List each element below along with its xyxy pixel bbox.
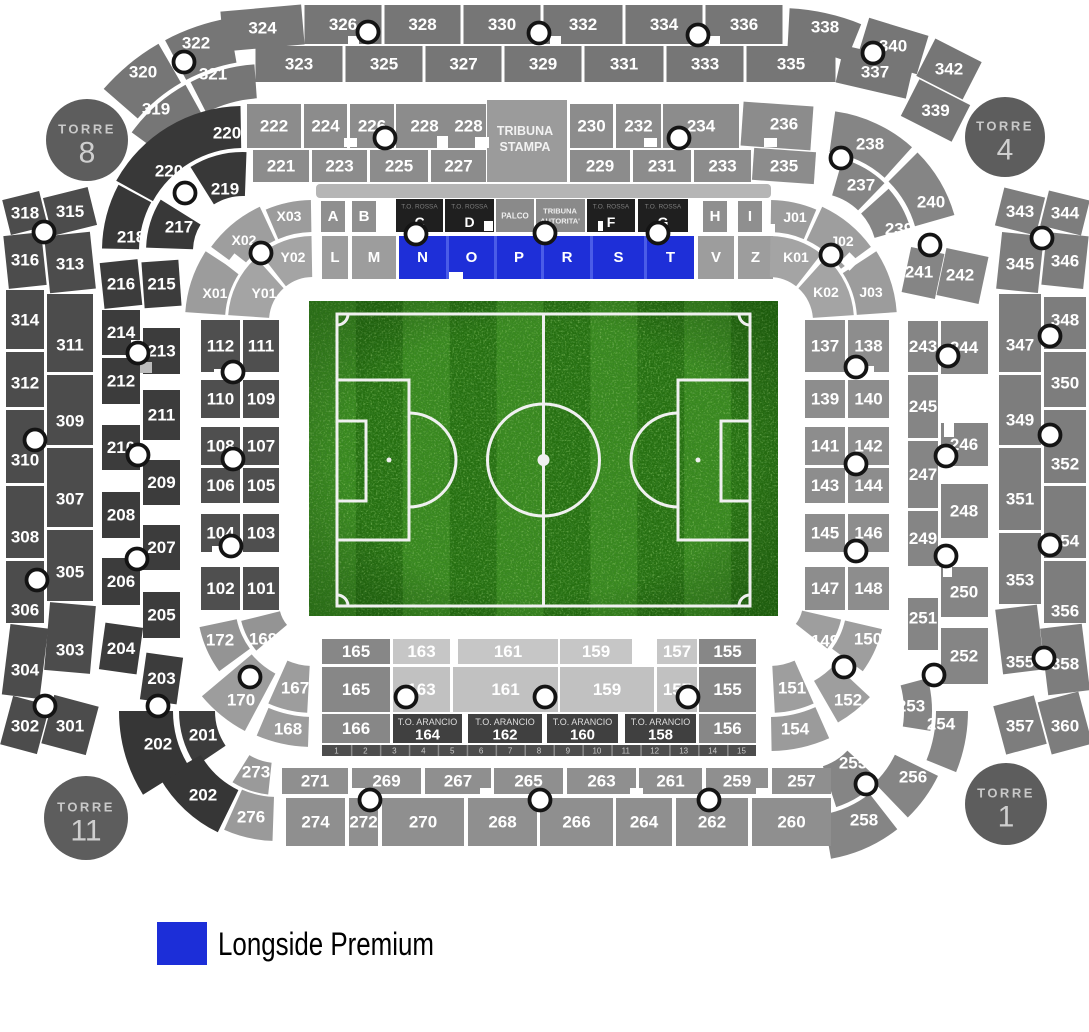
svg-text:J03: J03	[859, 284, 883, 300]
svg-text:234: 234	[687, 117, 716, 136]
svg-text:346: 346	[1051, 252, 1079, 271]
svg-text:270: 270	[409, 813, 437, 832]
svg-text:165: 165	[342, 642, 370, 661]
svg-text:306: 306	[11, 601, 39, 620]
svg-text:O: O	[466, 249, 478, 266]
svg-text:P: P	[514, 249, 524, 266]
svg-text:T.O. ARANCIO: T.O. ARANCIO	[398, 717, 458, 727]
svg-text:314: 314	[11, 311, 40, 330]
svg-text:360: 360	[1051, 717, 1079, 736]
svg-text:238: 238	[856, 135, 884, 154]
svg-text:140: 140	[854, 390, 882, 409]
svg-text:11: 11	[622, 747, 631, 756]
svg-text:328: 328	[408, 15, 436, 34]
svg-text:311: 311	[56, 336, 83, 355]
svg-text:331: 331	[610, 55, 638, 74]
svg-text:221: 221	[267, 157, 295, 176]
svg-text:260: 260	[777, 813, 805, 832]
svg-text:112: 112	[207, 337, 234, 356]
svg-text:D: D	[464, 214, 474, 230]
svg-text:249: 249	[909, 529, 937, 548]
svg-text:251: 251	[909, 609, 937, 628]
svg-text:204: 204	[107, 639, 136, 658]
svg-text:F: F	[607, 214, 616, 230]
svg-text:8: 8	[537, 747, 542, 756]
svg-text:232: 232	[624, 117, 652, 136]
svg-text:312: 312	[11, 374, 39, 393]
svg-text:161: 161	[491, 680, 519, 699]
svg-text:344: 344	[1051, 204, 1080, 223]
svg-text:229: 229	[586, 157, 614, 176]
svg-text:321: 321	[199, 65, 227, 84]
svg-text:212: 212	[107, 372, 135, 391]
svg-text:206: 206	[107, 572, 135, 591]
svg-text:15: 15	[737, 747, 746, 756]
svg-text:239: 239	[885, 220, 913, 239]
svg-text:S: S	[613, 249, 623, 266]
svg-text:14: 14	[708, 747, 717, 756]
svg-text:309: 309	[56, 412, 84, 431]
svg-text:106: 106	[206, 476, 234, 495]
svg-text:335: 335	[777, 55, 805, 74]
svg-text:6: 6	[479, 747, 484, 756]
svg-text:228: 228	[410, 117, 438, 136]
svg-text:250: 250	[950, 583, 978, 602]
svg-text:143: 143	[811, 476, 839, 495]
svg-text:13: 13	[679, 747, 688, 756]
svg-text:326: 326	[329, 15, 357, 34]
svg-text:230: 230	[577, 117, 605, 136]
svg-text:Y02: Y02	[281, 249, 306, 265]
svg-text:Longside Premium: Longside Premium	[218, 926, 434, 962]
svg-text:109: 109	[247, 390, 275, 409]
svg-text:304: 304	[11, 661, 40, 680]
svg-text:Y01: Y01	[252, 285, 277, 301]
svg-text:218: 218	[117, 228, 145, 247]
svg-text:M: M	[368, 249, 381, 266]
svg-text:240: 240	[917, 193, 945, 212]
svg-text:224: 224	[311, 117, 340, 136]
svg-text:355: 355	[1006, 653, 1034, 672]
svg-text:9: 9	[566, 747, 571, 756]
svg-text:139: 139	[811, 390, 839, 409]
svg-text:138: 138	[854, 337, 882, 356]
svg-text:T.O. ARANCIO: T.O. ARANCIO	[553, 717, 613, 727]
svg-text:203: 203	[147, 669, 175, 688]
svg-text:227: 227	[444, 157, 472, 176]
svg-text:313: 313	[56, 255, 84, 274]
svg-text:220: 220	[155, 162, 183, 181]
svg-text:10: 10	[592, 747, 601, 756]
svg-text:5: 5	[450, 747, 455, 756]
svg-text:302: 302	[11, 717, 39, 736]
svg-text:X03: X03	[277, 208, 302, 224]
svg-text:220: 220	[213, 124, 241, 143]
svg-text:N: N	[417, 249, 428, 266]
svg-text:105: 105	[247, 476, 275, 495]
svg-text:349: 349	[1006, 411, 1034, 430]
svg-text:151: 151	[778, 679, 806, 698]
svg-text:4: 4	[421, 747, 426, 756]
svg-text:259: 259	[723, 772, 751, 791]
svg-text:159: 159	[593, 680, 621, 699]
svg-text:T.O. ROSSA: T.O. ROSSA	[645, 204, 682, 211]
svg-text:333: 333	[691, 55, 719, 74]
svg-text:TORRE: TORRE	[976, 119, 1034, 134]
svg-text:201: 201	[189, 726, 217, 745]
svg-text:X01: X01	[203, 285, 228, 301]
svg-text:257: 257	[787, 772, 815, 791]
svg-text:263: 263	[587, 772, 615, 791]
svg-text:205: 205	[147, 606, 175, 625]
svg-text:265: 265	[514, 772, 542, 791]
svg-text:267: 267	[444, 772, 472, 791]
svg-text:258: 258	[850, 811, 878, 830]
svg-text:163: 163	[407, 642, 435, 661]
svg-text:1: 1	[998, 801, 1015, 834]
svg-text:301: 301	[56, 717, 84, 736]
svg-text:261: 261	[656, 772, 684, 791]
svg-text:103: 103	[247, 524, 275, 543]
svg-text:J01: J01	[783, 209, 807, 225]
svg-text:327: 327	[449, 55, 477, 74]
svg-text:166: 166	[342, 719, 370, 738]
svg-text:TORRE: TORRE	[58, 122, 116, 137]
svg-text:235: 235	[770, 157, 798, 176]
svg-text:231: 231	[648, 157, 676, 176]
svg-text:342: 342	[935, 60, 963, 79]
svg-text:255: 255	[839, 754, 867, 773]
svg-text:TORRE: TORRE	[57, 800, 115, 815]
svg-text:351: 351	[1006, 490, 1034, 509]
svg-text:12: 12	[650, 747, 659, 756]
svg-text:169: 169	[249, 630, 277, 649]
svg-text:338: 338	[811, 18, 839, 37]
svg-text:274: 274	[301, 813, 330, 832]
svg-text:207: 207	[147, 538, 175, 557]
svg-text:144: 144	[854, 476, 883, 495]
svg-text:339: 339	[921, 101, 949, 120]
svg-text:R: R	[562, 249, 573, 266]
svg-text:107: 107	[247, 437, 275, 456]
svg-text:T.O. ROSSA: T.O. ROSSA	[593, 204, 630, 211]
svg-text:216: 216	[107, 275, 135, 294]
svg-text:4: 4	[997, 134, 1014, 167]
svg-text:2: 2	[363, 747, 368, 756]
svg-text:11: 11	[70, 815, 101, 848]
svg-text:165: 165	[342, 680, 370, 699]
svg-text:262: 262	[698, 813, 726, 832]
svg-text:353: 353	[1006, 571, 1034, 590]
svg-text:T: T	[666, 249, 675, 266]
svg-text:247: 247	[909, 465, 937, 484]
svg-text:329: 329	[529, 55, 557, 74]
svg-text:H: H	[710, 208, 721, 225]
svg-text:202: 202	[189, 786, 217, 805]
svg-text:160: 160	[570, 727, 595, 744]
svg-text:155: 155	[713, 642, 741, 661]
svg-text:236: 236	[770, 115, 798, 134]
svg-text:L: L	[330, 249, 339, 266]
svg-text:357: 357	[1006, 717, 1034, 736]
svg-text:3: 3	[392, 747, 397, 756]
svg-text:320: 320	[129, 63, 157, 82]
svg-text:158: 158	[648, 727, 673, 744]
svg-text:Z: Z	[751, 249, 760, 266]
svg-text:110: 110	[207, 390, 234, 409]
svg-text:303: 303	[56, 641, 84, 660]
svg-text:324: 324	[248, 19, 277, 38]
svg-text:154: 154	[781, 720, 810, 739]
svg-text:337: 337	[861, 63, 889, 82]
svg-text:315: 315	[56, 202, 84, 221]
svg-text:307: 307	[56, 490, 84, 509]
svg-text:159: 159	[582, 642, 610, 661]
svg-text:152: 152	[834, 691, 862, 710]
svg-text:245: 245	[909, 397, 937, 416]
svg-text:242: 242	[946, 266, 974, 285]
svg-text:336: 336	[730, 15, 758, 34]
svg-text:266: 266	[562, 813, 590, 832]
svg-text:I: I	[748, 208, 752, 225]
svg-text:172: 172	[206, 631, 234, 650]
svg-text:168: 168	[274, 720, 302, 739]
svg-text:V: V	[711, 249, 721, 266]
svg-text:318: 318	[11, 204, 39, 223]
svg-text:7: 7	[508, 747, 513, 756]
svg-text:B: B	[359, 208, 370, 225]
svg-text:271: 271	[301, 772, 329, 791]
svg-text:243: 243	[909, 337, 937, 356]
svg-text:148: 148	[854, 579, 882, 598]
svg-text:237: 237	[847, 176, 875, 195]
svg-text:217: 217	[165, 218, 193, 237]
svg-text:228: 228	[454, 117, 482, 136]
svg-text:222: 222	[260, 117, 288, 136]
svg-text:202: 202	[144, 735, 172, 754]
svg-text:209: 209	[147, 473, 175, 492]
svg-text:347: 347	[1006, 336, 1034, 355]
svg-text:316: 316	[11, 251, 39, 270]
svg-text:213: 213	[147, 342, 175, 361]
svg-text:102: 102	[206, 579, 234, 598]
svg-text:STAMPA: STAMPA	[500, 140, 551, 154]
svg-text:223: 223	[325, 157, 353, 176]
svg-text:325: 325	[370, 55, 398, 74]
svg-text:233: 233	[708, 157, 736, 176]
svg-text:248: 248	[950, 502, 978, 521]
svg-text:167: 167	[281, 679, 309, 698]
svg-text:215: 215	[147, 275, 175, 294]
svg-text:219: 219	[211, 180, 239, 199]
svg-text:164: 164	[415, 727, 441, 744]
svg-text:137: 137	[811, 337, 839, 356]
svg-text:254: 254	[927, 715, 956, 734]
svg-text:264: 264	[630, 813, 659, 832]
svg-text:T.O. ROSSA: T.O. ROSSA	[451, 204, 488, 211]
svg-text:323: 323	[285, 55, 313, 74]
svg-text:TRIBUNA: TRIBUNA	[497, 124, 553, 138]
svg-text:253: 253	[897, 697, 925, 716]
svg-text:8: 8	[79, 137, 96, 170]
svg-text:350: 350	[1051, 374, 1079, 393]
svg-text:162: 162	[492, 727, 517, 744]
svg-text:PALCO: PALCO	[501, 212, 528, 221]
svg-text:161: 161	[494, 642, 522, 661]
svg-text:334: 334	[650, 15, 679, 34]
svg-text:345: 345	[1006, 255, 1034, 274]
svg-text:241: 241	[905, 263, 933, 282]
svg-text:141: 141	[811, 437, 839, 456]
svg-text:332: 332	[569, 15, 597, 34]
svg-text:T.O. ARANCIO: T.O. ARANCIO	[475, 717, 535, 727]
svg-text:156: 156	[713, 719, 741, 738]
svg-text:T.O. ROSSA: T.O. ROSSA	[401, 204, 438, 211]
svg-text:K02: K02	[813, 284, 839, 300]
svg-text:101: 101	[247, 579, 275, 598]
svg-text:147: 147	[811, 579, 839, 598]
svg-text:157: 157	[663, 642, 691, 661]
svg-text:225: 225	[385, 157, 413, 176]
svg-text:343: 343	[1006, 202, 1034, 221]
svg-text:TORRE: TORRE	[977, 786, 1035, 801]
svg-text:1: 1	[334, 747, 339, 756]
svg-text:310: 310	[11, 451, 39, 470]
svg-text:A: A	[328, 208, 339, 225]
svg-text:330: 330	[488, 15, 516, 34]
svg-text:150: 150	[854, 630, 882, 649]
svg-text:155: 155	[713, 680, 741, 699]
svg-text:252: 252	[950, 647, 978, 666]
svg-text:305: 305	[56, 563, 84, 582]
svg-text:322: 322	[182, 34, 210, 53]
svg-text:214: 214	[107, 323, 136, 342]
svg-text:208: 208	[107, 506, 135, 525]
svg-text:111: 111	[248, 337, 275, 356]
svg-text:K01: K01	[783, 249, 809, 265]
svg-text:356: 356	[1051, 602, 1079, 621]
svg-text:272: 272	[349, 813, 377, 832]
svg-text:268: 268	[488, 813, 516, 832]
svg-text:211: 211	[148, 406, 175, 425]
svg-text:170: 170	[227, 691, 255, 710]
svg-text:269: 269	[372, 772, 400, 791]
svg-text:352: 352	[1051, 455, 1079, 474]
svg-text:T.O. ARANCIO: T.O. ARANCIO	[631, 717, 691, 727]
svg-text:319: 319	[142, 100, 170, 119]
svg-text:145: 145	[811, 524, 839, 543]
svg-text:276: 276	[237, 808, 265, 827]
svg-text:273: 273	[242, 763, 270, 782]
svg-text:TRIBUNA: TRIBUNA	[543, 207, 577, 216]
svg-text:256: 256	[899, 768, 927, 787]
svg-text:308: 308	[11, 528, 39, 547]
